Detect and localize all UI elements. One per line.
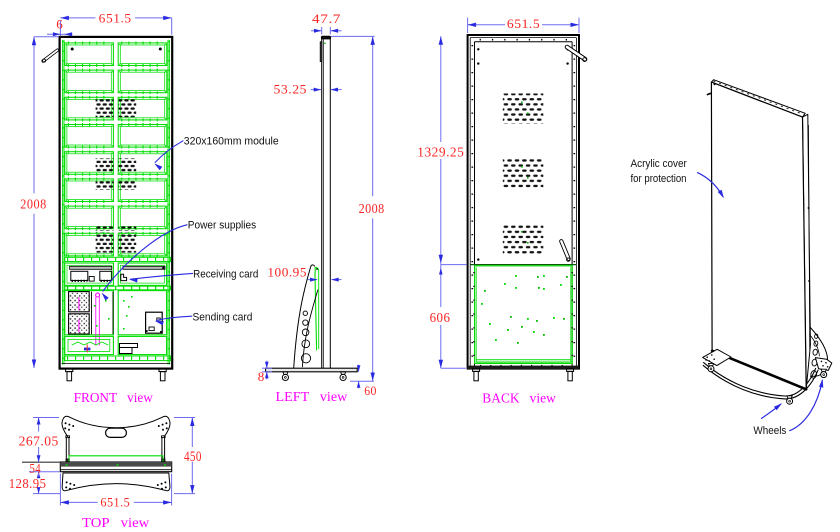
svg-text:606: 606 bbox=[430, 311, 451, 326]
svg-text:TOP view: TOP view bbox=[82, 516, 150, 531]
svg-text:320x160mm module: 320x160mm module bbox=[184, 136, 279, 148]
svg-text:2008: 2008 bbox=[20, 198, 46, 213]
svg-text:47.7: 47.7 bbox=[312, 11, 341, 26]
svg-text:8: 8 bbox=[258, 369, 265, 384]
svg-text:6: 6 bbox=[56, 16, 63, 31]
svg-text:Wheels: Wheels bbox=[753, 425, 786, 437]
svg-text:1329.25: 1329.25 bbox=[417, 146, 464, 161]
svg-text:651.5: 651.5 bbox=[100, 494, 130, 509]
svg-text:Acrylic cover: Acrylic cover bbox=[631, 158, 688, 170]
svg-text:100.95: 100.95 bbox=[267, 265, 307, 280]
svg-text:Sending card: Sending card bbox=[193, 311, 253, 323]
svg-text:60: 60 bbox=[364, 383, 377, 398]
svg-text:2008: 2008 bbox=[359, 202, 385, 217]
svg-text:LEFT view: LEFT view bbox=[276, 390, 349, 405]
svg-text:BACK view: BACK view bbox=[482, 392, 556, 407]
svg-text:54: 54 bbox=[30, 462, 42, 477]
svg-text:651.5: 651.5 bbox=[99, 11, 132, 26]
svg-text:Power supplies: Power supplies bbox=[188, 220, 257, 232]
svg-text:651.5: 651.5 bbox=[507, 16, 540, 31]
svg-text:450: 450 bbox=[184, 449, 202, 465]
svg-text:128.95: 128.95 bbox=[9, 477, 47, 492]
svg-text:FRONT view: FRONT view bbox=[74, 391, 154, 406]
svg-text:Receiving card: Receiving card bbox=[193, 269, 258, 281]
svg-text:267.05: 267.05 bbox=[19, 434, 59, 449]
svg-text:for protection: for protection bbox=[631, 173, 687, 185]
svg-text:53.25: 53.25 bbox=[274, 82, 308, 97]
